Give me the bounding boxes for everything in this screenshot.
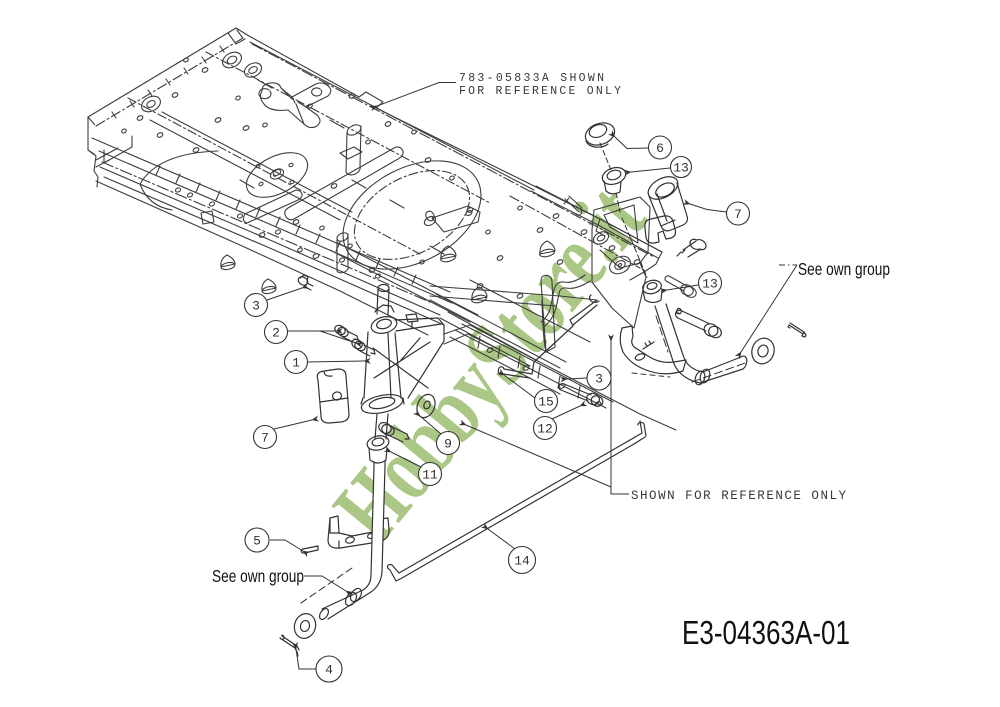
svg-text:7: 7: [734, 207, 742, 222]
svg-text:SHOWN FOR REFERENCE ONLY: SHOWN FOR REFERENCE ONLY: [631, 489, 846, 503]
svg-text:4: 4: [325, 663, 333, 678]
svg-text:1: 1: [292, 356, 300, 371]
svg-text:5: 5: [253, 534, 261, 549]
svg-text:See own group: See own group: [212, 566, 304, 586]
svg-text:14: 14: [514, 554, 530, 569]
svg-text:3: 3: [595, 372, 603, 387]
svg-text:12: 12: [537, 422, 553, 437]
svg-text:See own group: See own group: [798, 259, 890, 279]
svg-text:2: 2: [272, 326, 280, 341]
svg-text:11: 11: [422, 468, 438, 483]
svg-text:13: 13: [702, 277, 718, 292]
svg-text:15: 15: [538, 395, 554, 410]
svg-text:9: 9: [444, 437, 452, 452]
svg-text:7: 7: [261, 431, 269, 446]
svg-text:6: 6: [656, 141, 664, 156]
svg-text:13: 13: [673, 161, 689, 176]
svg-text:E3-04363A-01: E3-04363A-01: [682, 614, 850, 651]
svg-text:3: 3: [252, 299, 260, 314]
